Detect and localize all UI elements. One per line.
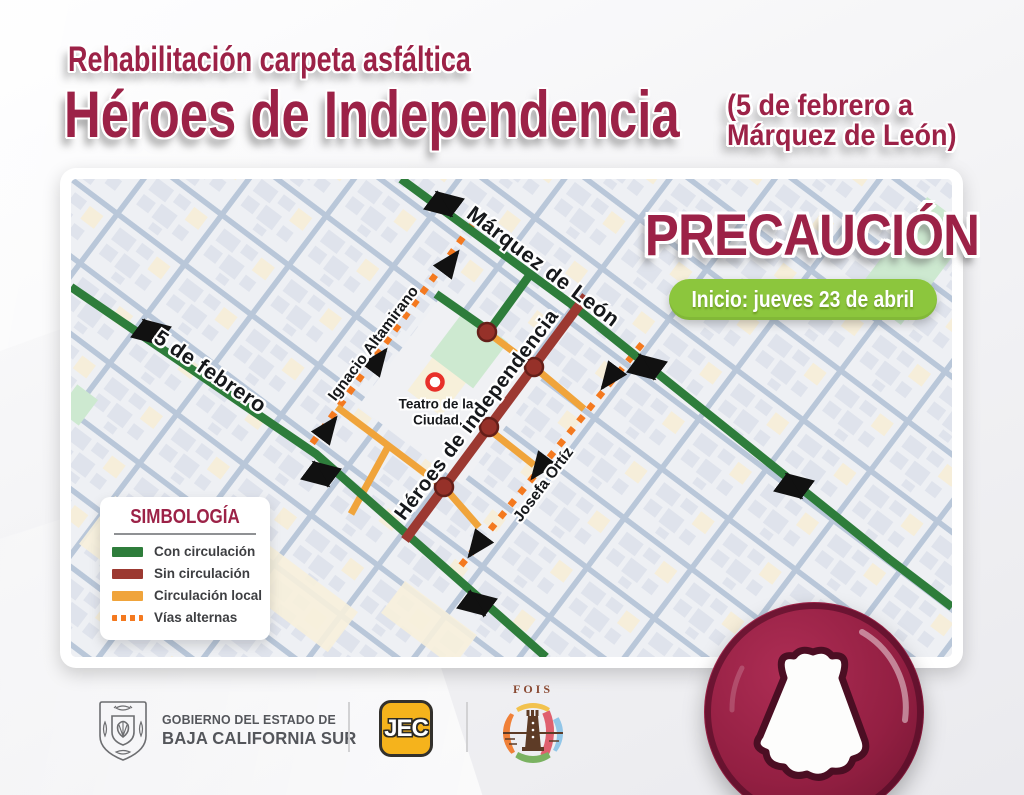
alternate-route-swatch	[112, 615, 143, 621]
open-circulation-swatch	[112, 547, 143, 557]
legend-title: SIMBOLOGÍA	[123, 506, 247, 529]
headline-title: Héroes de Independencia	[64, 76, 680, 152]
legend-item-closed: Sin circulación	[112, 566, 258, 581]
legend-card: SIMBOLOGÍA Con circulación Sin circulaci…	[100, 497, 270, 640]
start-date-badge: Inicio: jueves 23 de abril	[669, 279, 937, 320]
fois-logo: FOIS	[496, 682, 570, 770]
legend-divider	[114, 533, 256, 535]
fois-label: FOIS	[496, 682, 570, 697]
state-coat-of-arms-icon	[92, 696, 154, 769]
scallop-shell-icon	[704, 602, 924, 795]
headline-range: (5 de febrero a Márquez de León)	[727, 91, 957, 151]
footer-divider	[466, 702, 468, 752]
headline-range-line2: Márquez de León)	[727, 121, 957, 151]
teatro-marker-icon	[428, 375, 443, 390]
caution-heading: PRECAUCIÓN	[622, 202, 972, 269]
closure-node-icon	[478, 323, 496, 341]
government-line1: GOBIERNO DEL ESTADO DE	[162, 712, 356, 727]
headline-subtitle: Rehabilitación carpeta asfáltica	[68, 40, 471, 80]
local-circulation-swatch	[112, 591, 143, 601]
closed-circulation-swatch	[112, 569, 143, 579]
poster: Rehabilitación carpeta asfáltica Héroes …	[0, 0, 1024, 795]
legend-item-open: Con circulación	[112, 544, 258, 559]
headline-range-line1: (5 de febrero a	[727, 91, 957, 121]
fois-lighthouse-icon	[499, 697, 567, 765]
government-line2: BAJA CALIFORNIA SUR	[162, 728, 356, 749]
poi-label-teatro: Teatro de la Ciudad	[399, 396, 474, 427]
legend-item-local: Circulación local	[112, 588, 258, 603]
legend-item-alternate: Vías alternas	[112, 610, 258, 625]
government-name: GOBIERNO DEL ESTADO DE BAJA CALIFORNIA S…	[162, 712, 356, 749]
jec-logo: JEC	[379, 700, 433, 757]
footer-divider	[348, 702, 350, 752]
shell-badge	[704, 602, 924, 795]
